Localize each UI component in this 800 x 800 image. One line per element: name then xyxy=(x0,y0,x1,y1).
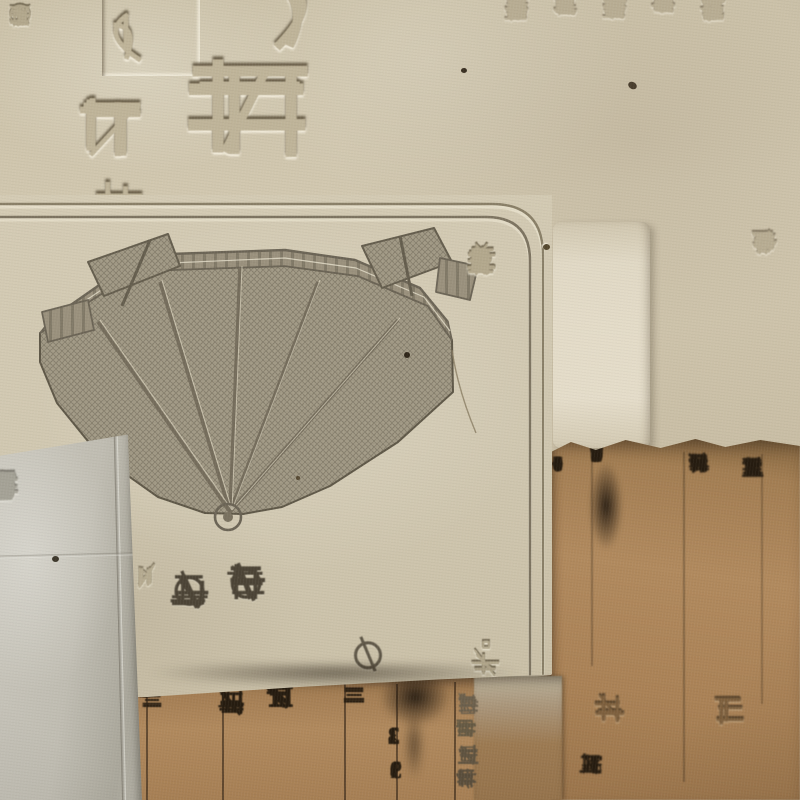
paper-speck xyxy=(543,244,550,250)
sheet-seam-shadow xyxy=(100,664,570,694)
right-brown-matrix: +1 0 0 +2 0 +1 42 68 64 65 69 100 100 52… xyxy=(551,436,800,800)
paper-speck xyxy=(404,352,410,358)
bright-sheet-edge xyxy=(553,222,650,448)
ink-blotch xyxy=(589,462,623,550)
table-rule xyxy=(761,454,763,704)
printing-matrix-photo: 210 190 123 139 +1 0 0 +2 0 +1 42 68 64 … xyxy=(0,0,800,800)
paper-speck xyxy=(296,476,300,480)
paper-speck xyxy=(52,556,59,562)
panel-boxed-char xyxy=(482,641,490,649)
ink-smudge xyxy=(404,710,424,780)
table-rule xyxy=(683,452,685,782)
strip-ridge xyxy=(114,435,126,800)
paper-speck xyxy=(461,68,467,73)
embossed-name-block xyxy=(474,676,562,800)
left-grey-strip xyxy=(0,434,142,800)
